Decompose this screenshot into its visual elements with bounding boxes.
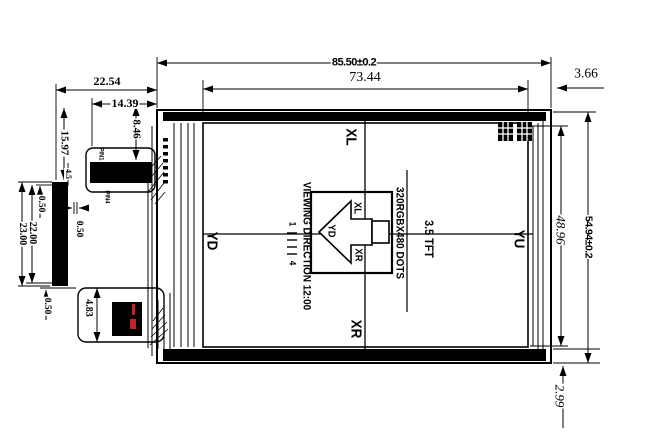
bottom-bezel-bar [163, 349, 546, 361]
touch-pin1-label: PIN1 [97, 147, 104, 160]
indicator-yd-label: YD [326, 224, 337, 237]
dim-height-active-label: 48.96 [555, 214, 568, 245]
electrode-top-label: XL [344, 128, 359, 145]
dim-edge-right-label: 3.66 [574, 66, 598, 80]
touch-pin4-label: PIN4 [103, 190, 110, 203]
electrode-bottom-label: XR [349, 320, 364, 339]
dim-left-a-label: 22.54 [94, 75, 121, 87]
electrode-right-label: YU [512, 230, 527, 249]
dim-gap-mid-label: 0.50 [73, 220, 83, 239]
dim-height-b-label: 23.00 [17, 222, 27, 247]
panel-resolution-label: 320RGBX480 DOTS [394, 187, 405, 279]
dim-left-d-label: 15.97 [59, 130, 70, 157]
bonding-pads [163, 138, 168, 184]
indicator-xl-label: XL [352, 202, 363, 214]
top-bezel-bar [163, 112, 546, 121]
viewing-direction-label: VIEWING DIRECTION 12:00 [301, 182, 312, 310]
dim-height-total-label: 54.94±0.2 [583, 215, 594, 259]
dim-left-e-label: 4.5 [64, 168, 72, 180]
pin-last-label: 4 [288, 261, 297, 266]
dim-gap-bottom-label: 0.50 [41, 297, 51, 316]
dim-width-total-label: 85.50±0.2 [331, 58, 377, 69]
pin1-marker-text [130, 319, 136, 329]
dim-edge-bottom-label: 2.99 [554, 384, 567, 409]
dim-gap-top-label: 0.50 [35, 195, 45, 214]
touch-fpc-tail [90, 162, 152, 183]
indicator-xr-label: XR [353, 248, 364, 261]
fpc-connector [112, 302, 142, 336]
drawing-linework [0, 0, 648, 434]
lcd-outline-drawing: 85.50±0.2 73.44 3.66 22.54 14.39 8.46 15… [0, 0, 648, 434]
dim-width-active-label: 73.44 [349, 71, 381, 85]
pin1-marker [132, 304, 135, 315]
pin-first-label: 1 [288, 222, 297, 227]
dim-fpc-len-label: 4.83 [83, 298, 93, 318]
bottom-joint-hatch [150, 308, 168, 345]
electrode-left-label: YD [205, 232, 220, 251]
corner-grid-marks [498, 122, 532, 141]
dim-height-a-label: 22.00 [27, 221, 37, 246]
main-fpc-cable [52, 182, 68, 286]
panel-size-label: 3.5 TFT [423, 220, 435, 258]
dim-left-c-label: 8.46 [131, 118, 142, 139]
pin-number-ticks [287, 233, 297, 254]
dim-left-b-label: 14.39 [111, 97, 140, 109]
